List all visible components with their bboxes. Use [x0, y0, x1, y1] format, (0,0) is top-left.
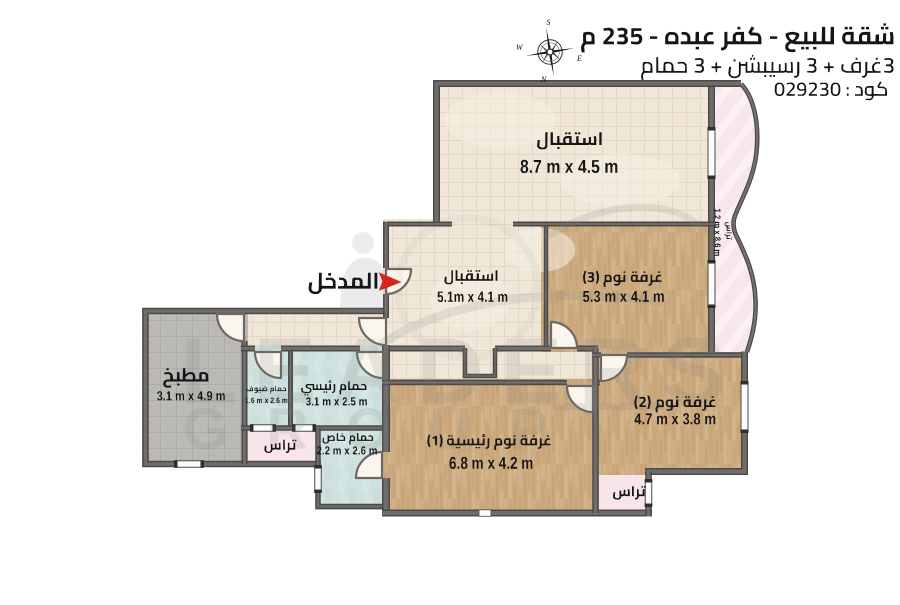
- svg-text:S: S: [547, 18, 551, 27]
- svg-text:GROUP: GROUP: [183, 397, 586, 462]
- svg-text:N: N: [540, 75, 547, 84]
- svg-text:E: E: [576, 54, 582, 63]
